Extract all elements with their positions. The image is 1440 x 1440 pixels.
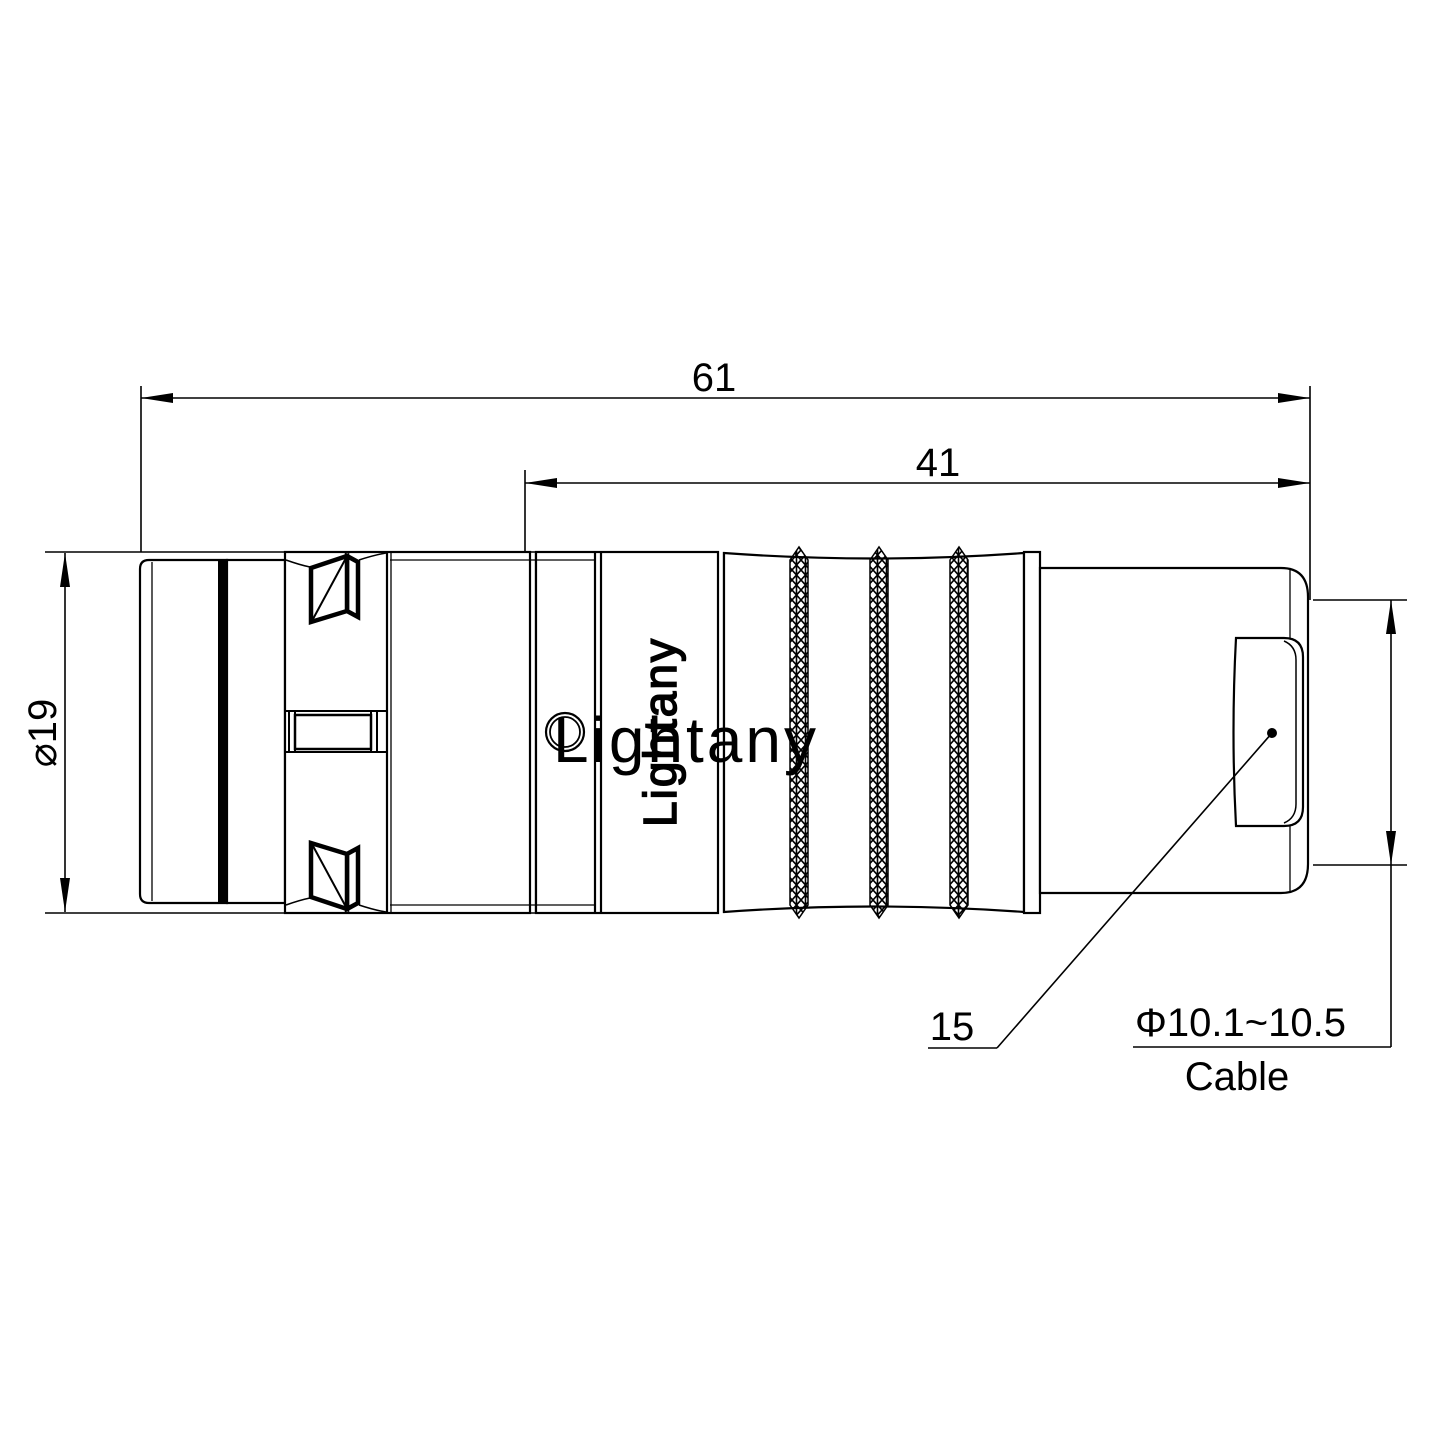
connector-technical-drawing: 61 41 ⌀19	[0, 0, 1440, 1440]
cable-diameter-text: Φ10.1~10.5	[1135, 1001, 1346, 1045]
collar-ring	[1024, 552, 1040, 913]
dim-diameter-text: ⌀19	[21, 699, 65, 768]
arrowhead-right	[1278, 478, 1310, 488]
dim-total-length-text: 61	[692, 356, 737, 400]
knurl-band	[870, 547, 888, 918]
latch-clip-top	[311, 556, 358, 622]
arrowhead-left	[141, 393, 173, 403]
part-label-text: 15	[930, 1005, 975, 1049]
arrowhead-down	[60, 878, 70, 912]
gasket-band	[218, 560, 227, 903]
arrowhead-down	[1386, 831, 1396, 865]
brand-watermark: Lightany	[553, 704, 819, 776]
knurl-band	[950, 547, 968, 918]
latch-clip-bottom	[311, 843, 358, 909]
front-cap	[140, 560, 227, 903]
technical-drawing-page: 61 41 ⌀19	[0, 0, 1440, 1440]
arrowhead-up	[60, 553, 70, 587]
arrowhead-right	[1278, 393, 1310, 403]
arrowhead-up	[1386, 600, 1396, 634]
dim-rear-length-text: 41	[916, 441, 961, 485]
cable-label-text: Cable	[1185, 1055, 1290, 1099]
front-section	[227, 560, 285, 903]
leader-dot	[1267, 728, 1277, 738]
arrowhead-left	[525, 478, 557, 488]
